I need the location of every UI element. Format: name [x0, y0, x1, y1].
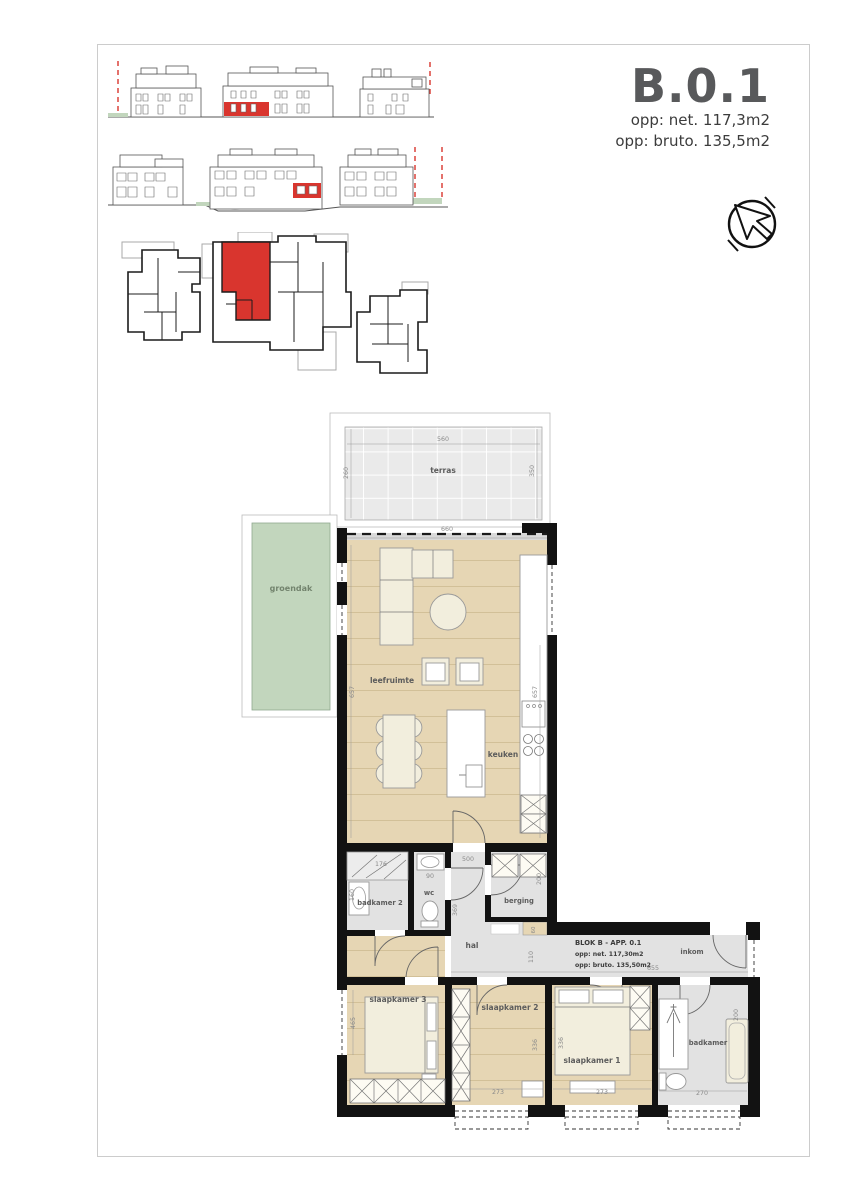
- toilet1: [659, 1073, 686, 1090]
- hal-strip-dim: 110: [528, 951, 535, 963]
- bench1: [570, 1081, 615, 1093]
- dining-table: [376, 715, 422, 788]
- badkamer-label: badkamer: [689, 1039, 728, 1047]
- toilet2: [421, 901, 438, 927]
- living-depth-left-dim: 657: [349, 686, 356, 698]
- info-block-line1: BLOK B - APP. 0.1: [575, 939, 642, 947]
- bath-depth-dim: 200: [733, 1009, 740, 1021]
- terras-width-dim: 560: [437, 436, 449, 443]
- berging-dim: 200: [536, 873, 543, 885]
- badkamer2-label: badkamer 2: [357, 899, 403, 907]
- bed3-depth-dim: 465: [350, 1017, 357, 1029]
- slaapkamer2-label: slaapkamer 2: [481, 1003, 538, 1012]
- bed3: [365, 997, 438, 1073]
- terras-label: terras: [430, 466, 456, 475]
- north-arrow-icon: [720, 192, 784, 256]
- keyplan-block-c: [357, 282, 428, 373]
- elevation2-building-right: [340, 149, 413, 205]
- hal-depth-dim: 369: [452, 904, 459, 916]
- info-block-line3: opp: bruto. 135,50m2: [575, 962, 651, 969]
- terras-depth-right-dim: 350: [529, 465, 536, 477]
- hal-width-dim: 500: [462, 856, 474, 863]
- bathtub: [726, 1019, 748, 1083]
- coffee-table: [430, 594, 466, 630]
- floor-living: [347, 540, 547, 843]
- elevation1-building-left: [131, 66, 201, 117]
- elevation1-building-right: [360, 69, 429, 117]
- elevation2-building-left: [113, 155, 183, 205]
- berging-label: berging: [504, 897, 534, 905]
- wc-label: wc: [424, 889, 434, 897]
- shaft-dim: 60: [531, 926, 537, 933]
- bed2-width-dim: 273: [492, 1089, 504, 1096]
- elevation-rear: [100, 145, 450, 217]
- slaapkamer1-label: slaapkamer 1: [563, 1056, 620, 1065]
- hal-label: hal: [466, 941, 479, 950]
- slaapkamer3-label: slaapkamer 3: [369, 995, 426, 1004]
- unit-area-gross: opp: bruto. 135,5m2: [540, 131, 770, 152]
- leefruimte-label: leefruimte: [370, 676, 414, 685]
- wardrobe1: [630, 986, 650, 1030]
- floor-nachthal: [347, 936, 445, 977]
- bed1-depth-dim: 336: [558, 1037, 565, 1049]
- kitchen-island: [447, 710, 485, 797]
- elevation1-building-middle: [223, 67, 333, 117]
- inkom-label: inkom: [680, 948, 703, 956]
- unit-code: B.0.1: [540, 62, 770, 110]
- shower1: [659, 999, 688, 1069]
- unit-title-block: B.0.1 opp: net. 117,3m2 opp: bruto. 135,…: [540, 62, 770, 152]
- elevation2-building-middle: [210, 149, 322, 209]
- entry-width-dim: 655: [647, 965, 659, 972]
- living-width-dim: 660: [441, 526, 453, 533]
- elevation-front: [100, 58, 445, 133]
- living-depth-right-dim: 657: [532, 686, 539, 698]
- keyplan-block-b: [202, 232, 351, 370]
- bed2-depth-dim: 336: [532, 1039, 539, 1051]
- groendak-label: groendak: [270, 584, 313, 593]
- shower-width-dim: 176: [375, 861, 387, 868]
- key-plan: [118, 232, 438, 387]
- wardrobe3: [350, 1079, 445, 1103]
- info-block-line2: opp: net. 117,30m2: [575, 951, 643, 958]
- wc-width-dim: 90: [426, 873, 434, 880]
- bath-width-dim: 270: [696, 1090, 708, 1097]
- unit-area-net: opp: net. 117,3m2: [540, 110, 770, 131]
- bed1-width-dim: 273: [596, 1089, 608, 1096]
- basin-dim: 160: [349, 889, 356, 901]
- floor-plan: terras 560 260 350 groendak: [240, 405, 780, 1135]
- room-terras: terras 560 260 350: [330, 413, 550, 527]
- wardrobe2: [452, 989, 470, 1101]
- plan-sheet: B.0.1 opp: net. 117,3m2 opp: bruto. 135,…: [0, 0, 848, 1200]
- terras-depth-left-dim: 260: [343, 467, 350, 479]
- keuken-label: keuken: [488, 750, 518, 759]
- room-groendak: groendak: [242, 515, 337, 717]
- keyplan-block-a: [122, 242, 200, 340]
